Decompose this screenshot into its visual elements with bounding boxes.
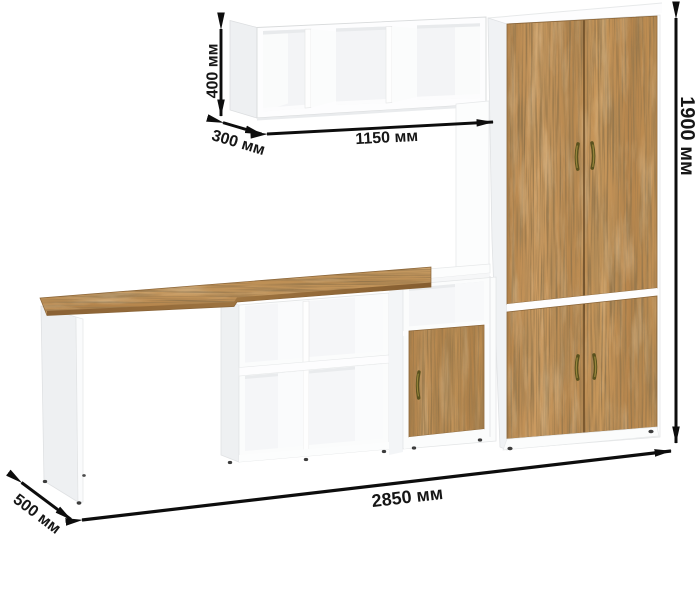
svg-text:1150 мм: 1150 мм — [355, 128, 419, 148]
svg-text:400 мм: 400 мм — [205, 44, 222, 99]
svg-text:1900 мм: 1900 мм — [676, 96, 698, 176]
